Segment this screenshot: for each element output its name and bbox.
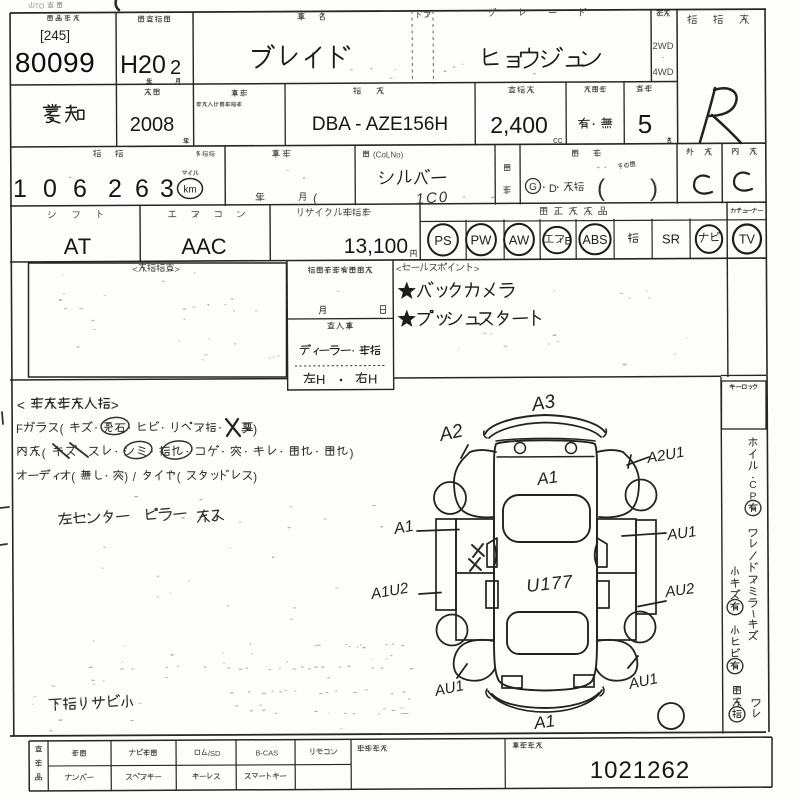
svg-text:<: < — [132, 265, 138, 276]
svg-text:DBA - AZE156H: DBA - AZE156H — [312, 114, 448, 135]
svg-text:(: ( — [71, 472, 76, 484]
svg-text:AU2: AU2 — [663, 580, 696, 601]
svg-text:AU1: AU1 — [665, 523, 697, 544]
svg-text:): ) — [253, 472, 258, 484]
svg-text:A1: A1 — [532, 711, 556, 733]
svg-text:A1: A1 — [392, 518, 415, 538]
svg-text:): ) — [350, 446, 355, 460]
svg-text:A1U2: A1U2 — [369, 580, 411, 604]
svg-text:<: < — [17, 398, 25, 413]
svg-text:A2U1: A2U1 — [645, 444, 686, 467]
svg-text:80099: 80099 — [15, 47, 95, 78]
svg-text:3: 3 — [160, 175, 174, 203]
svg-text:/SD: /SD — [208, 749, 221, 758]
svg-text:4WD: 4WD — [652, 67, 673, 78]
svg-text:A2: A2 — [437, 420, 465, 446]
svg-text:AU1: AU1 — [432, 677, 465, 700]
svg-text:(CoLNo): (CoLNo) — [373, 151, 404, 160]
svg-text:(: ( — [597, 175, 605, 202]
svg-text:SR: SR — [662, 232, 680, 247]
svg-text:H20: H20 — [120, 51, 166, 79]
svg-text:1021262: 1021262 — [590, 757, 690, 784]
svg-text:B-CAS: B-CAS — [255, 749, 278, 758]
svg-text:6: 6 — [135, 175, 149, 203]
svg-text:TV: TV — [739, 233, 756, 247]
svg-text:5: 5 — [638, 109, 652, 139]
svg-text:H: H — [316, 372, 325, 387]
svg-text:km: km — [183, 185, 196, 196]
svg-text:cc: cc — [553, 135, 563, 146]
svg-text:(: ( — [60, 424, 65, 436]
svg-text:AU1: AU1 — [626, 670, 659, 693]
svg-text:1C0: 1C0 — [415, 189, 450, 208]
svg-text:G: G — [529, 182, 537, 193]
svg-text:PS: PS — [434, 233, 452, 248]
svg-text:>: > — [174, 265, 180, 276]
svg-text:AW: AW — [509, 233, 530, 248]
svg-text:(: ( — [42, 446, 47, 460]
svg-text:2WD: 2WD — [652, 41, 673, 52]
svg-text:(: ( — [313, 191, 318, 206]
svg-text:A3: A3 — [529, 391, 557, 416]
svg-text:TO: TO — [35, 4, 45, 11]
svg-text:6: 6 — [73, 175, 87, 203]
svg-text:(: ( — [177, 472, 182, 484]
svg-text:AAC: AAC — [181, 234, 226, 259]
svg-text:ABS: ABS — [582, 233, 607, 247]
svg-text:A1: A1 — [535, 467, 559, 489]
svg-text:): ) — [253, 423, 257, 437]
svg-text:C: C — [749, 479, 757, 491]
svg-text:F: F — [16, 424, 24, 436]
svg-text:1: 1 — [13, 175, 27, 203]
svg-text:H: H — [368, 372, 377, 387]
svg-text:0: 0 — [43, 175, 57, 203]
svg-text:PW: PW — [471, 233, 493, 248]
svg-text:2,400: 2,400 — [490, 112, 548, 138]
svg-text:<: < — [396, 264, 402, 275]
svg-text:) /: ) / — [124, 472, 136, 484]
svg-text:U177: U177 — [525, 571, 574, 596]
svg-text:13,100: 13,100 — [344, 235, 408, 258]
svg-text:D: D — [549, 183, 557, 195]
svg-text:>: > — [474, 264, 480, 275]
svg-text:2: 2 — [108, 175, 122, 203]
svg-text:2: 2 — [170, 57, 181, 79]
svg-text:[245]: [245] — [40, 28, 70, 43]
svg-text:·: · — [662, 52, 665, 62]
svg-text:AT: AT — [64, 234, 92, 259]
svg-text:): ) — [650, 175, 658, 202]
svg-text:>: > — [111, 398, 119, 413]
svg-text:2008: 2008 — [130, 114, 175, 136]
